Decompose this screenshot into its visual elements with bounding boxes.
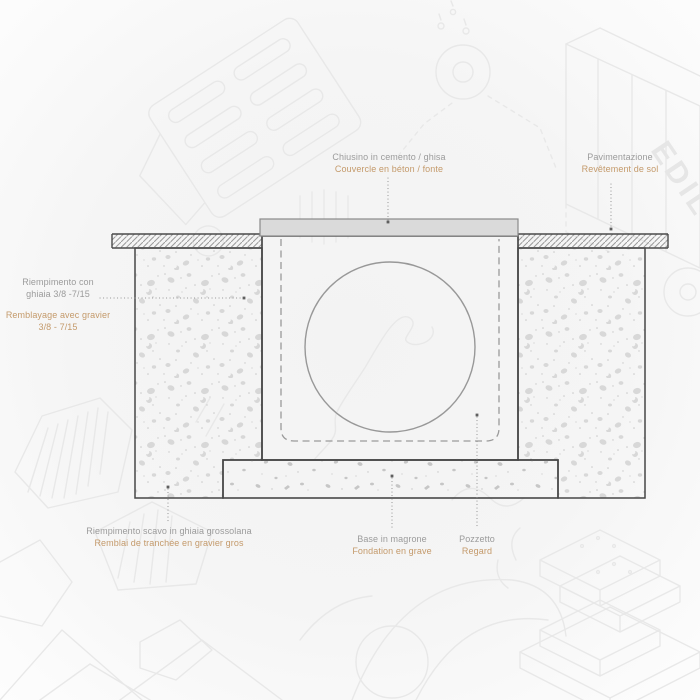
pipe-opening-circle [305,262,475,432]
leader-dot-gravel-fill [243,297,246,300]
label-base-fr: Fondation en grave [352,546,431,558]
label-cover: Chiusino in cemento / ghisa Couvercle en… [332,152,445,175]
label-cover-it: Chiusino in cemento / ghisa [332,152,445,164]
label-paving-fr: Revêtement de sol [582,164,659,176]
label-gravel-fill-fr-line2: 3/8 - 7/15 [6,322,110,334]
label-pit-fr: Regard [459,546,495,558]
label-cover-fr: Couvercle en béton / fonte [332,164,445,176]
label-gravel-fill-fr-line1: Remblayage avec gravier [6,310,110,322]
label-gravel-fill-it-line2: ghiaia 3/8 -7/15 [6,289,110,301]
base-slab [223,460,558,498]
leader-dot-pit [476,414,479,417]
pit-wall-outline [262,236,518,460]
label-paving-it: Pavimentazione [582,152,659,164]
label-paving: Pavimentazione Revêtement de sol [582,152,659,175]
label-gravel-fill-it-line1: Riempimento con [6,277,110,289]
pavement-right [518,234,668,248]
label-gravel-fill: Riempimento con ghiaia 3/8 -7/15 Remblay… [6,277,110,333]
label-trench-fill: Riempimento scavo in ghiaia grossolana R… [86,526,251,549]
label-trench-fill-it: Riempimento scavo in ghiaia grossolana [86,526,251,538]
leader-dot-trench-fill [167,486,170,489]
label-pit-it: Pozzetto [459,534,495,546]
section-drawing [0,0,700,700]
technical-drawing-page: EDIL [0,0,700,700]
leader-dot-cover [387,221,390,224]
leader-dot-paving [610,228,613,231]
pit-inner-cavity-dashed-outline [281,239,499,441]
leader-dot-base [391,475,394,478]
label-pit: Pozzetto Regard [459,534,495,557]
label-trench-fill-fr: Remblai de tranchée en gravier gros [86,538,251,550]
label-base: Base in magrone Fondation en grave [352,534,431,557]
label-base-it: Base in magrone [352,534,431,546]
pavement-left [112,234,262,248]
